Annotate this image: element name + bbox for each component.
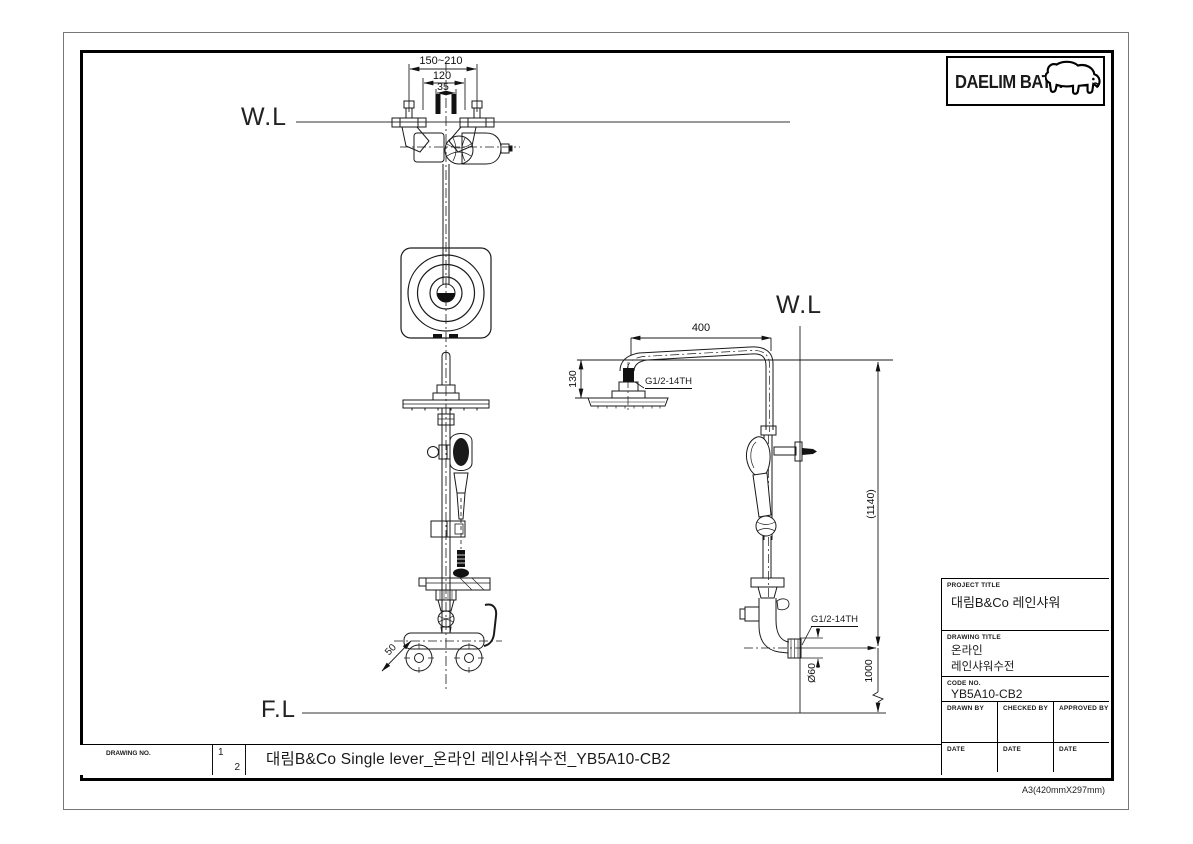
- dim-flange-diameter: Ø60: [806, 663, 818, 683]
- code-no-value: YB5A10-CB2: [942, 687, 1109, 701]
- footer-drawing-title: 대림B&Co Single lever_온라인 레인샤워수전_YB5A10-CB…: [246, 745, 941, 774]
- drawing-no-label: DRAWING NO.: [80, 745, 212, 757]
- approved-by-label: APPROVED BY: [1054, 702, 1109, 712]
- dim-overall-height: (1140): [865, 489, 877, 519]
- code-no-label: CODE NO.: [942, 677, 1109, 687]
- side-view: [575, 338, 893, 712]
- dim-valve-height: 1000: [863, 659, 875, 682]
- floor-line-label: F.L: [261, 696, 296, 724]
- drawing-title-label: DRAWING TITLE: [942, 631, 1109, 641]
- drawing-title-line2: 레인샤워수전: [942, 658, 1109, 674]
- dim-arm-length: 400: [666, 322, 736, 334]
- drawing-no-cell: DRAWING NO.: [80, 745, 212, 775]
- dim-inlet-range: 150~210: [406, 55, 476, 67]
- paper-size-note: A3(420mmX297mm): [950, 785, 1105, 795]
- sheet-number-cell: 1 2: [212, 745, 246, 775]
- footer-title-cell: 대림B&Co Single lever_온라인 레인샤워수전_YB5A10-CB…: [246, 745, 941, 775]
- reference-lines: [296, 122, 886, 713]
- date-row: DATE DATE DATE: [942, 743, 1109, 772]
- front-view-column: [394, 62, 502, 690]
- dim-head-drop: 130: [567, 370, 579, 388]
- footer-strip: DRAWING NO. 1 2 대림B&Co Single lever_온라인 …: [80, 744, 941, 775]
- project-title-label: PROJECT TITLE: [942, 579, 1109, 589]
- date-label-1: DATE: [942, 743, 997, 753]
- sheet-number: 1: [218, 747, 224, 758]
- signature-row: DRAWN BY CHECKED BY APPROVED BY: [942, 702, 1109, 743]
- dim-head-thread: G1/2-14TH: [645, 376, 692, 389]
- drawn-by-label: DRAWN BY: [942, 702, 997, 712]
- water-line-label-right: W.L: [776, 291, 822, 320]
- date-label-3: DATE: [1054, 743, 1109, 753]
- title-block: PROJECT TITLE 대림B&Co 레인샤워 DRAWING TITLE …: [941, 578, 1109, 775]
- dim-bolt-spacing: 35: [424, 81, 462, 93]
- project-title-value: 대림B&Co 레인샤워: [942, 592, 1109, 611]
- water-line-label-left: W.L: [241, 103, 287, 132]
- brand-logo: DAELIM BATH: [946, 56, 1105, 106]
- front-view-valve: [392, 94, 520, 248]
- sheet-total: 2: [234, 762, 240, 773]
- drawing-sheet: W.L W.L F.L 150~210 120 35 50 400 130 G1…: [0, 0, 1193, 844]
- polar-bear-icon: [1045, 59, 1103, 103]
- project-title-row: PROJECT TITLE 대림B&Co 레인샤워: [942, 579, 1109, 631]
- drawing-title-row: DRAWING TITLE 온라인 레인샤워수전: [942, 631, 1109, 677]
- date-label-2: DATE: [998, 743, 1053, 753]
- drawing-title-line1: 온라인: [942, 642, 1109, 658]
- code-no-row: CODE NO. YB5A10-CB2: [942, 677, 1109, 702]
- checked-by-label: CHECKED BY: [998, 702, 1053, 712]
- dim-inlet-thread: G1/2-14TH: [811, 614, 858, 627]
